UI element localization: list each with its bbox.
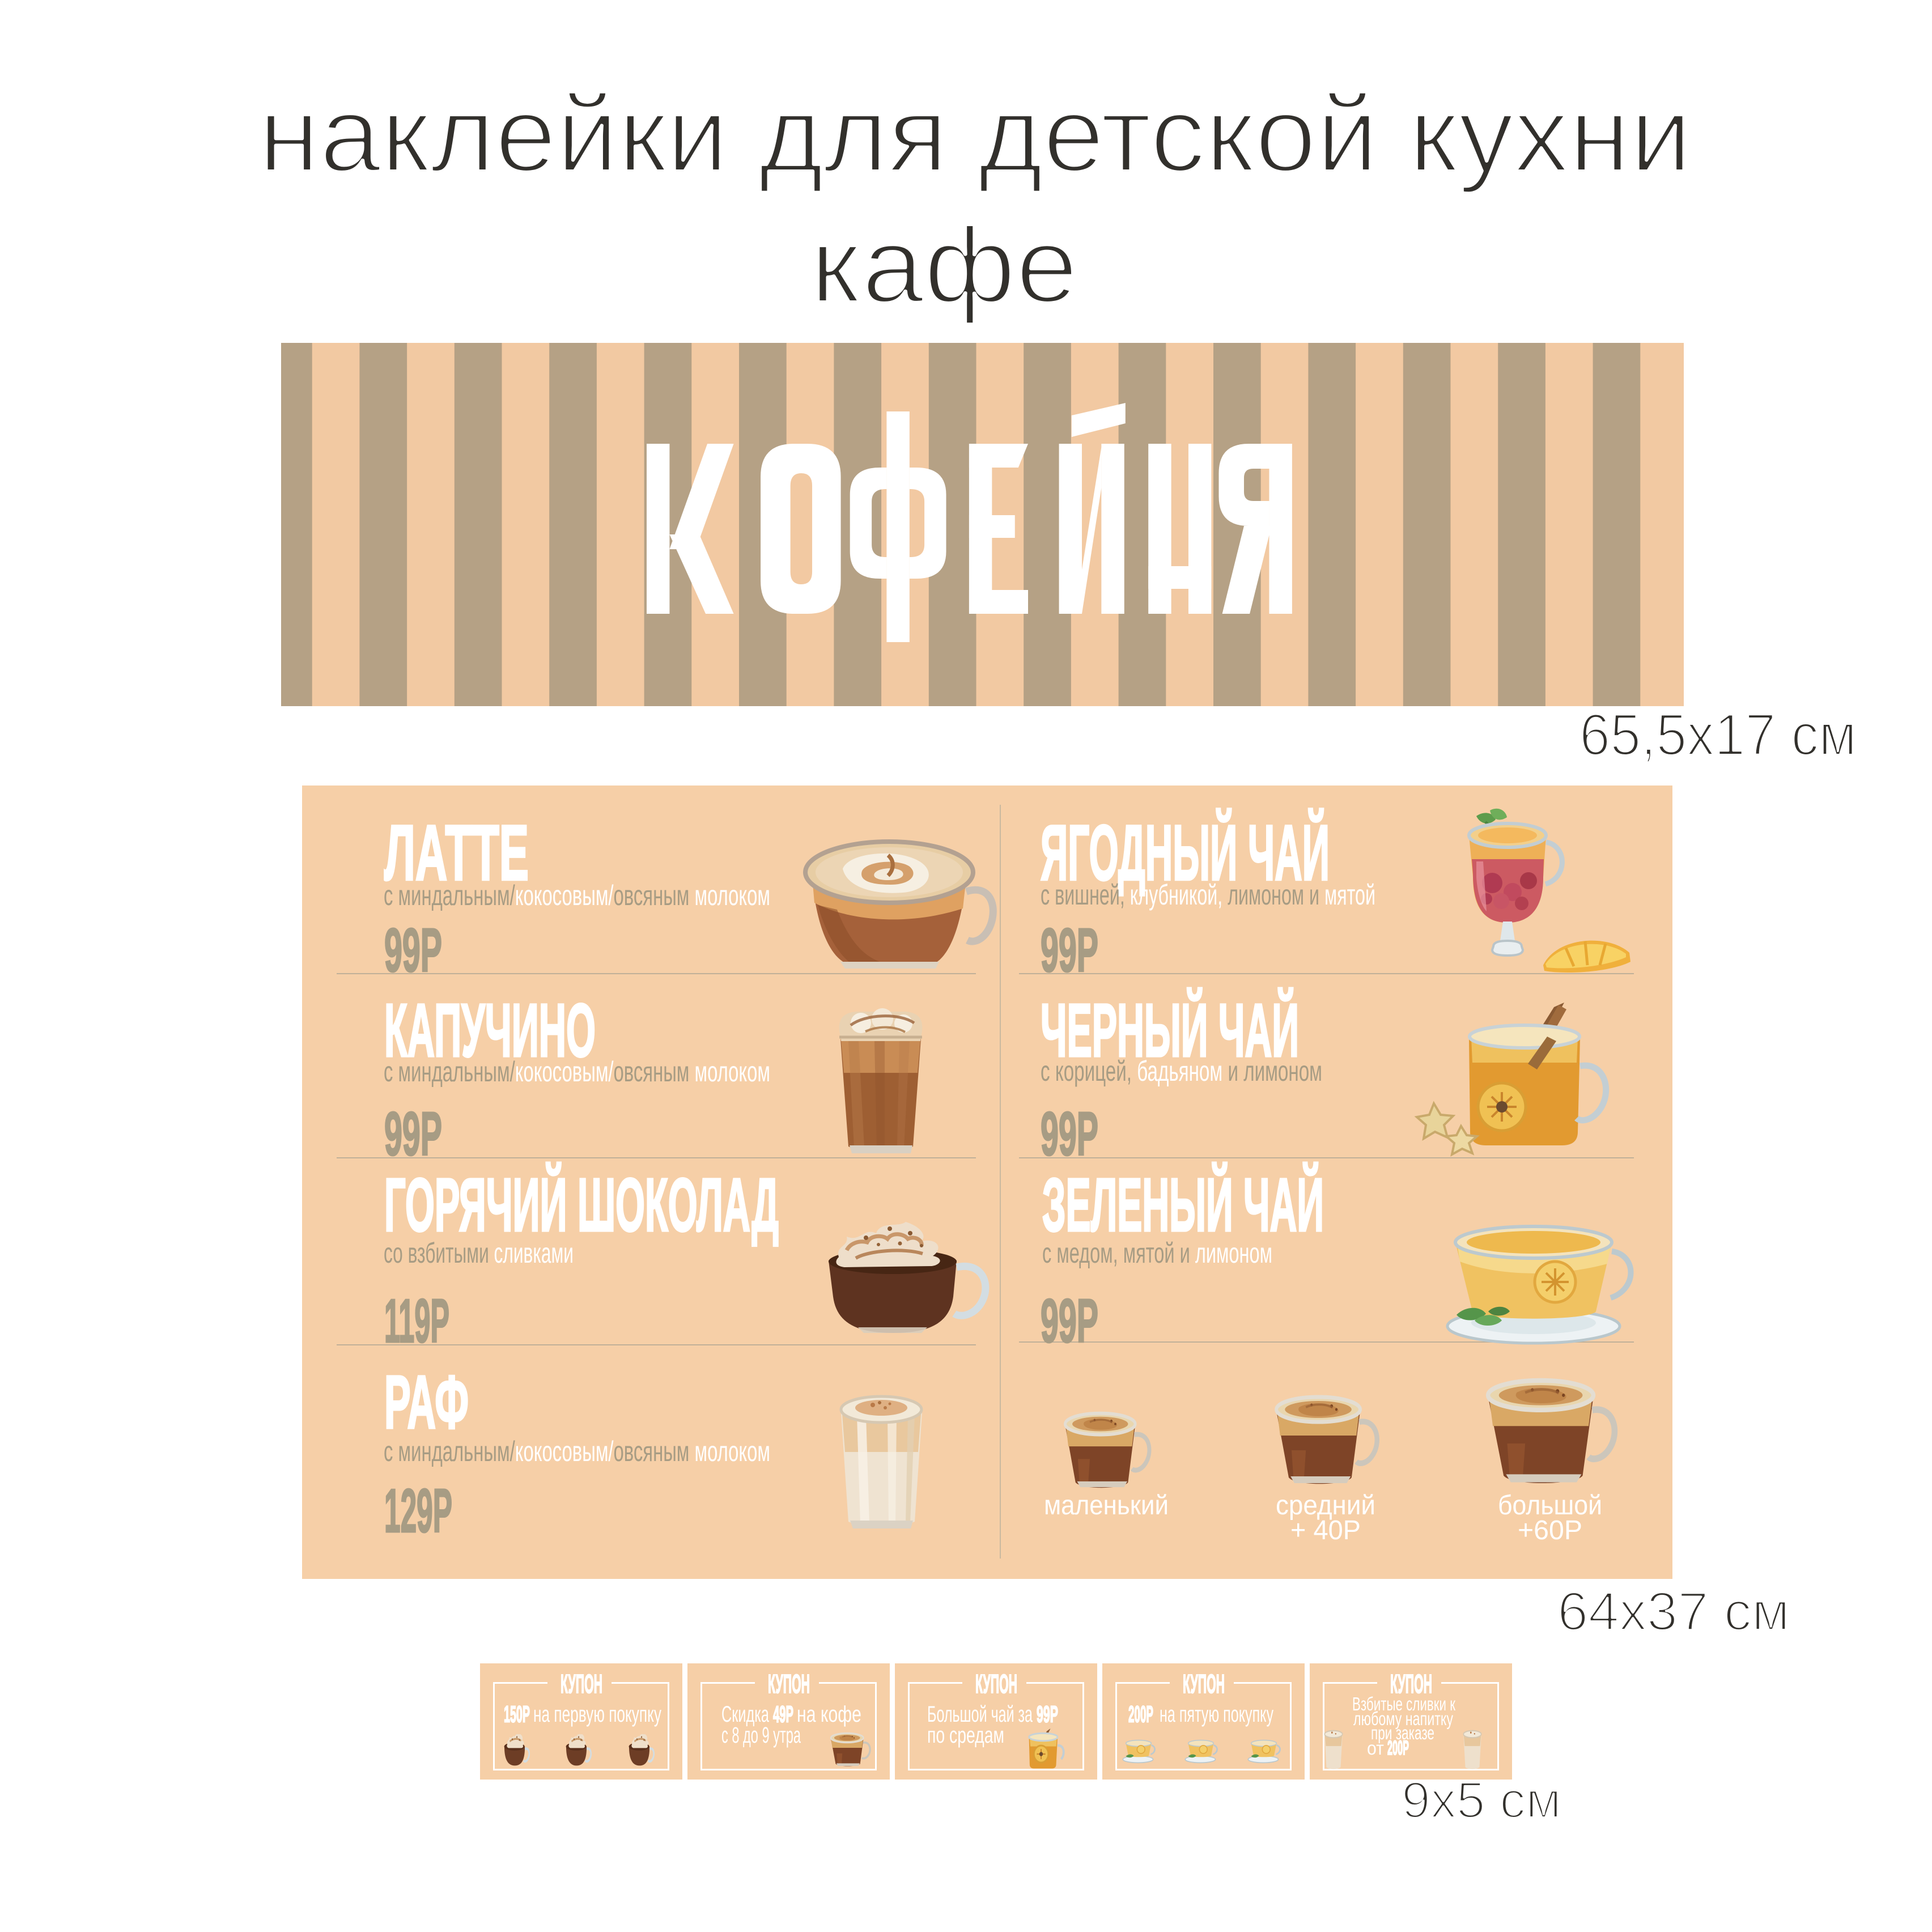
- svg-text:с вишней, клубникой, лимоном и: с вишней, клубникой, лимоном и мятой: [1041, 879, 1375, 911]
- svg-text:с миндальным/кокосовым/овсяным: с миндальным/кокосовым/овсяным молоком: [384, 1436, 770, 1467]
- svg-text:с медом, мятой и лимоном: с медом, мятой и лимоном: [1042, 1237, 1272, 1269]
- svg-text:маленький: маленький: [1044, 1491, 1169, 1521]
- svg-text:200Р: 200Р: [1128, 1701, 1153, 1727]
- svg-text:по средам: по средам: [927, 1723, 1004, 1748]
- svg-text:+ 40Р: + 40Р: [1290, 1515, 1361, 1545]
- svg-text:от: от: [1367, 1738, 1384, 1759]
- svg-text:65,5x17 см: 65,5x17 см: [1579, 702, 1857, 768]
- svg-text:на первую покупку: на первую покупку: [533, 1702, 661, 1727]
- svg-text:со взбитыми сливками: со взбитыми сливками: [384, 1237, 574, 1269]
- svg-text:150Р: 150Р: [504, 1701, 530, 1727]
- svg-text:99Р: 99Р: [1037, 1701, 1058, 1727]
- svg-text:КУПОН: КУПОН: [975, 1669, 1017, 1699]
- svg-text:200Р: 200Р: [1387, 1737, 1409, 1759]
- svg-text:на пятую покупку: на пятую покупку: [1160, 1702, 1273, 1727]
- svg-text:129Р: 129Р: [384, 1476, 452, 1545]
- svg-text:КУПОН: КУПОН: [561, 1669, 602, 1699]
- svg-text:наклейки для детской кухни: наклейки для детской кухни: [258, 75, 1692, 194]
- svg-text:РАФ: РАФ: [384, 1361, 469, 1445]
- svg-text:9x5 см: 9x5 см: [1402, 1772, 1561, 1829]
- svg-text:КУПОН: КУПОН: [768, 1669, 810, 1699]
- svg-text:с миндальным/кокосовым/овсяным: с миндальным/кокосовым/овсяным молоком: [384, 1056, 770, 1088]
- svg-text:с 8 до 9 утра: с 8 до 9 утра: [721, 1723, 801, 1748]
- svg-text:99Р: 99Р: [1041, 1099, 1098, 1169]
- svg-text:на кофе: на кофе: [797, 1702, 861, 1727]
- svg-text:ГОРЯЧИЙ ШОКОЛАД: ГОРЯЧИЙ ШОКОЛАД: [384, 1162, 779, 1247]
- svg-text:ЗЕЛЕНЫЙ ЧАЙ: ЗЕЛЕНЫЙ ЧАЙ: [1042, 1162, 1324, 1247]
- svg-text:КУПОН: КУПОН: [1183, 1669, 1225, 1699]
- svg-text:с корицей, бадьяном и лимоном: с корицей, бадьяном и лимоном: [1041, 1055, 1322, 1087]
- svg-text:64x37 см: 64x37 см: [1557, 1581, 1790, 1642]
- svg-text:119Р: 119Р: [384, 1286, 449, 1356]
- svg-text:99Р: 99Р: [384, 1099, 442, 1169]
- svg-text:99Р: 99Р: [384, 916, 442, 985]
- svg-text:с миндальным/кокосовым/овсяным: с миндальным/кокосовым/овсяным молоком: [384, 880, 770, 911]
- svg-text:99Р: 99Р: [1041, 916, 1098, 985]
- svg-text:кафе: кафе: [810, 206, 1078, 325]
- svg-text:+60Р: +60Р: [1518, 1515, 1582, 1545]
- svg-text:99Р: 99Р: [1041, 1286, 1098, 1356]
